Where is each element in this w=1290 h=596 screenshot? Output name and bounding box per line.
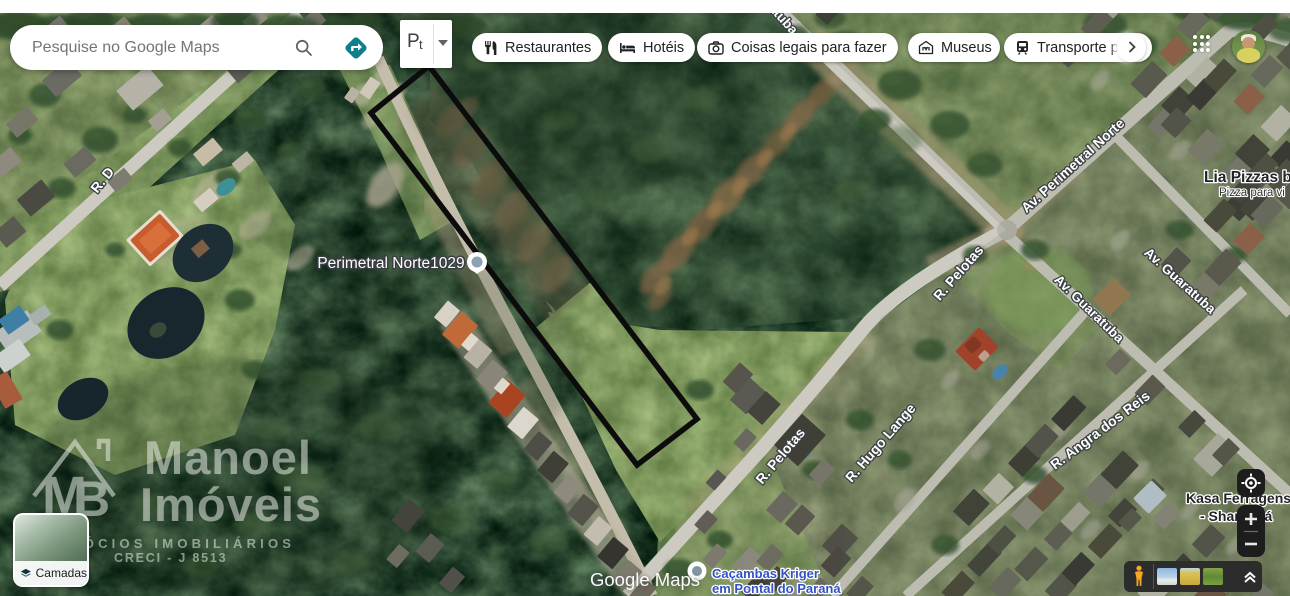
svg-text:Imóveis: Imóveis (140, 478, 322, 531)
svg-text:Lia Pizzas bu: Lia Pizzas bu (1204, 169, 1290, 186)
svg-text:Perimetral Norte1029: Perimetral Norte1029 (317, 255, 464, 272)
svg-text:CRECI - J 8513: CRECI - J 8513 (114, 551, 227, 565)
svg-text:Caçambas Kriger: Caçambas Kriger (712, 566, 819, 581)
svg-text:em Pontal do Paraná: em Pontal do Paraná (712, 581, 841, 596)
svg-text:Google Maps: Google Maps (590, 569, 700, 590)
svg-text:Pizza para vi: Pizza para vi (1219, 187, 1285, 199)
svg-text:Manoel: Manoel (144, 431, 312, 484)
